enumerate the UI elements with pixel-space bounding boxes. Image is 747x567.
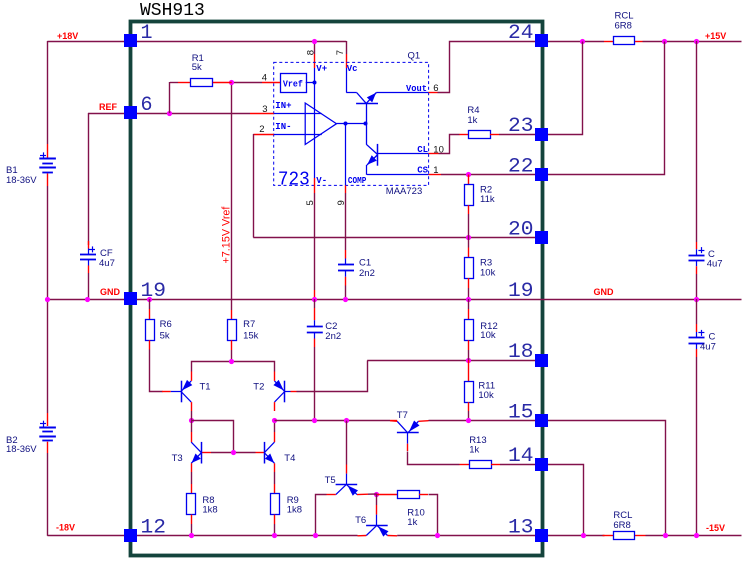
svg-text:1: 1: [141, 22, 153, 45]
svg-text:1k: 1k: [469, 445, 479, 456]
svg-text:18-36V: 18-36V: [6, 444, 37, 455]
svg-text:4: 4: [262, 73, 267, 84]
svg-text:+15V: +15V: [705, 31, 726, 41]
svg-text:2n2: 2n2: [325, 331, 341, 342]
svg-text:13: 13: [508, 517, 534, 540]
svg-text:20: 20: [508, 218, 534, 241]
svg-text:10k: 10k: [478, 390, 494, 401]
svg-text:IN+: IN+: [275, 101, 291, 111]
svg-text:2n2: 2n2: [359, 268, 375, 279]
svg-text:Vc: Vc: [347, 64, 358, 74]
svg-text:22: 22: [508, 155, 534, 178]
svg-text:1: 1: [433, 165, 438, 176]
svg-text:CL: CL: [417, 145, 428, 155]
svg-text:10k: 10k: [480, 268, 496, 279]
svg-text:+18V: +18V: [57, 31, 78, 41]
svg-text:11k: 11k: [480, 194, 495, 205]
svg-text:1k8: 1k8: [287, 504, 302, 515]
svg-text:GND: GND: [594, 287, 615, 297]
svg-text:T2: T2: [253, 381, 264, 392]
svg-text:GND: GND: [100, 287, 121, 297]
svg-text:19: 19: [141, 280, 167, 303]
svg-text:MAA723: MAA723: [386, 186, 422, 197]
svg-text:8: 8: [305, 50, 316, 55]
svg-text:T6: T6: [355, 515, 366, 526]
svg-text:10: 10: [433, 144, 444, 155]
svg-text:V+: V+: [316, 64, 327, 74]
svg-text:1k: 1k: [407, 517, 417, 528]
svg-text:3: 3: [262, 104, 267, 115]
svg-text:T1: T1: [200, 381, 211, 392]
svg-text:5k: 5k: [192, 62, 202, 73]
svg-text:-15V: -15V: [706, 523, 725, 533]
svg-text:1k8: 1k8: [202, 504, 217, 515]
svg-text:5k: 5k: [160, 331, 170, 342]
svg-text:6: 6: [433, 83, 438, 94]
svg-text:14: 14: [508, 445, 534, 468]
svg-text:CS: CS: [417, 166, 428, 176]
svg-text:T5: T5: [325, 475, 336, 486]
svg-text:10k: 10k: [480, 330, 496, 341]
svg-text:15: 15: [508, 402, 534, 425]
svg-text:24: 24: [508, 22, 534, 45]
svg-text:12: 12: [141, 517, 167, 540]
svg-text:4u7: 4u7: [700, 341, 716, 352]
svg-text:T7: T7: [397, 410, 408, 421]
svg-text:6: 6: [141, 94, 153, 117]
svg-text:18-36V: 18-36V: [6, 175, 37, 186]
svg-text:18: 18: [508, 341, 534, 364]
svg-text:Vref: Vref: [283, 80, 303, 90]
svg-text:4u7: 4u7: [99, 258, 115, 269]
svg-text:REF: REF: [99, 102, 118, 112]
svg-text:4u7: 4u7: [707, 258, 723, 269]
svg-text:WSH913: WSH913: [140, 1, 205, 21]
svg-text:R6: R6: [160, 319, 172, 330]
svg-text:23: 23: [508, 115, 534, 138]
svg-text:T4: T4: [284, 453, 295, 464]
svg-text:7: 7: [335, 50, 346, 55]
svg-text:Vout: Vout: [406, 84, 427, 94]
svg-text:C1: C1: [359, 258, 371, 269]
svg-text:15k: 15k: [243, 331, 259, 342]
svg-text:2: 2: [259, 124, 264, 135]
svg-text:6R8: 6R8: [615, 20, 632, 31]
svg-text:Q1: Q1: [408, 51, 421, 62]
svg-text:T3: T3: [172, 453, 183, 464]
svg-text:19: 19: [508, 280, 534, 303]
svg-text:+7.15V Vref: +7.15V Vref: [220, 206, 232, 264]
svg-text:6R8: 6R8: [613, 520, 630, 531]
svg-text:723: 723: [278, 169, 310, 191]
svg-text:R7: R7: [243, 319, 255, 330]
svg-text:COMP: COMP: [348, 176, 367, 186]
svg-text:-18V: -18V: [56, 523, 75, 533]
svg-text:IN-: IN-: [275, 122, 291, 132]
svg-text:1k: 1k: [467, 115, 477, 126]
svg-text:V-: V-: [316, 176, 327, 186]
